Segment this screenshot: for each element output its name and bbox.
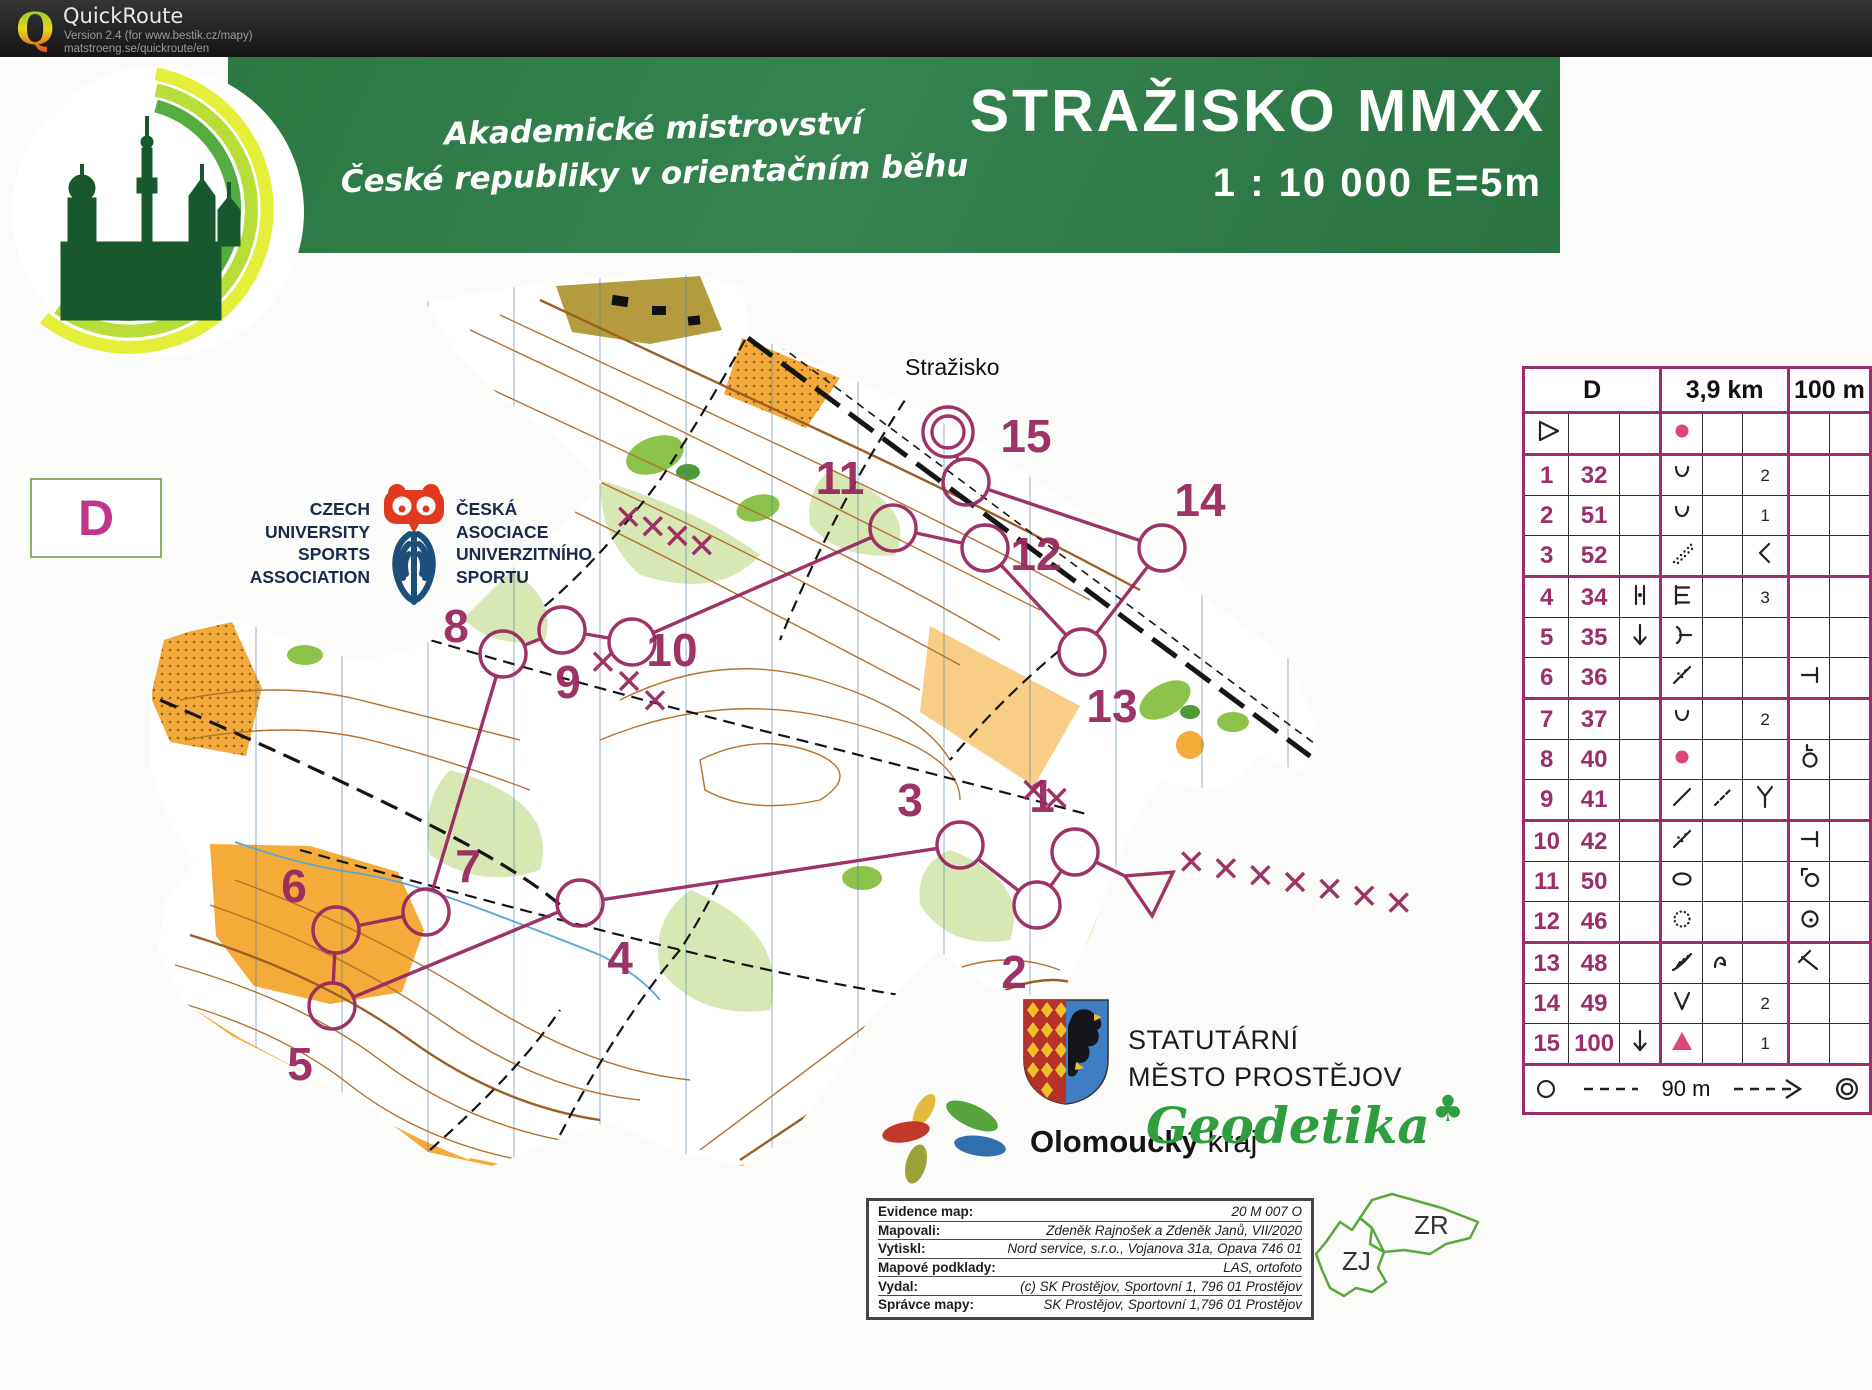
map-evidence-table: Evidence map:20 M 007 OMapovali:Zdeněk R… <box>866 1198 1314 1320</box>
desc-cell: 42 <box>1569 821 1620 862</box>
desc-cell <box>1830 699 1871 740</box>
desc-cell <box>1702 618 1743 658</box>
desc-cell: 32 <box>1569 455 1620 496</box>
desc-cell: 4 <box>1524 577 1569 618</box>
app-title: QuickRoute <box>63 4 183 28</box>
desc-cell <box>1661 658 1703 699</box>
svg-text:Q: Q <box>16 4 54 54</box>
place-label: Stražisko <box>905 354 1000 380</box>
desc-cell <box>1830 1024 1871 1065</box>
control-number: 1 <box>1029 770 1055 822</box>
cusa-line: ASOCIACE <box>456 521 646 544</box>
desc-cell <box>1743 902 1788 943</box>
desc-cell <box>1619 618 1661 658</box>
desc-cell <box>1788 577 1830 618</box>
evidence-label: Mapové podklady: <box>878 1260 996 1275</box>
desc-cell: 6 <box>1524 658 1569 699</box>
desc-cell <box>1661 943 1703 984</box>
event-title: Akademické mistrovství České republiky v… <box>323 98 985 205</box>
finish-row: 90 m <box>1524 1065 1871 1114</box>
forbidden-x-mark <box>1355 887 1373 905</box>
description-row: 151001 <box>1524 1024 1871 1065</box>
control-number: 10 <box>646 624 697 676</box>
desc-cell <box>1788 902 1830 943</box>
desc-cell <box>1661 1024 1703 1065</box>
desc-cell <box>1743 536 1788 577</box>
desc-cell <box>1702 496 1743 536</box>
desc-cell <box>1788 658 1830 699</box>
desc-cell: 52 <box>1569 536 1620 577</box>
desc-cell <box>1619 455 1661 496</box>
desc-cell <box>1788 1024 1830 1065</box>
desc-cell <box>1661 984 1703 1024</box>
control-number: 4 <box>607 932 633 984</box>
cusa-line: ČESKÁ <box>456 498 646 521</box>
desc-cell <box>1830 984 1871 1024</box>
event-banner: Akademické mistrovství České republiky v… <box>228 57 1560 253</box>
desc-cell: 5 <box>1524 618 1569 658</box>
prostejov-line1: STATUTÁRNÍ <box>1128 1022 1402 1059</box>
desc-cell <box>1619 943 1661 984</box>
desc-climb: 100 m <box>1788 368 1870 413</box>
desc-cell: 7 <box>1524 699 1569 740</box>
description-row: 941 <box>1524 780 1871 821</box>
control-number: 6 <box>281 860 307 912</box>
desc-cell <box>1661 577 1703 618</box>
control-number: 5 <box>287 1038 313 1090</box>
desc-cell <box>1619 577 1661 618</box>
cusa-line: UNIVERZITNÍHO <box>456 543 646 566</box>
control-number: 12 <box>1010 528 1061 580</box>
desc-cell <box>1788 455 1830 496</box>
desc-cell <box>1788 740 1830 780</box>
cusa-line: CZECH <box>230 498 370 521</box>
desc-cell: 1 <box>1743 496 1788 536</box>
desc-cell <box>1702 984 1743 1024</box>
evidence-label: Správce mapy: <box>878 1297 974 1312</box>
desc-cell <box>1619 536 1661 577</box>
description-row: 1348 <box>1524 943 1871 984</box>
desc-cell <box>1788 984 1830 1024</box>
desc-cell <box>1743 943 1788 984</box>
evidence-label: Vydal: <box>878 1279 918 1294</box>
area-label-zj: ZJ <box>1342 1246 1371 1276</box>
evidence-value: Zdeněk Rajnošek a Zdeněk Janů, VII/2020 <box>1046 1223 1302 1238</box>
forbidden-x-mark <box>1390 894 1408 912</box>
desc-cell <box>1830 536 1871 577</box>
desc-cell <box>1702 413 1743 455</box>
control-descriptions: D3,9 km100 m1322251135243435356367372840… <box>1522 366 1872 1115</box>
mapper-area-outline: ZJ ZR <box>1306 1186 1506 1316</box>
desc-cell <box>1661 862 1703 902</box>
control-number: 9 <box>555 656 581 708</box>
evidence-row: Správce mapy:SK Prostějov, Sportovní 1,7… <box>878 1296 1302 1314</box>
class-box: D <box>30 478 162 558</box>
desc-cell: 41 <box>1569 780 1620 821</box>
desc-cell: 40 <box>1569 740 1620 780</box>
description-row: 1322 <box>1524 455 1871 496</box>
desc-cell: 50 <box>1569 862 1620 902</box>
desc-cell <box>1619 699 1661 740</box>
description-row: 4343 <box>1524 577 1871 618</box>
desc-cell <box>1702 821 1743 862</box>
evidence-value: (c) SK Prostějov, Sportovní 1, 796 01 Pr… <box>1020 1279 1302 1294</box>
desc-cell <box>1619 780 1661 821</box>
desc-cell <box>1661 699 1703 740</box>
control-circle <box>1139 525 1185 571</box>
desc-cell <box>1788 699 1830 740</box>
arrow-icon <box>1732 1072 1810 1106</box>
description-row: 2511 <box>1524 496 1871 536</box>
geodetika-name: Geodetika <box>1146 1096 1430 1155</box>
cusa-line: SPORTU <box>456 566 646 589</box>
desc-cell: 15 <box>1524 1024 1569 1065</box>
desc-cell <box>1743 821 1788 862</box>
desc-cell <box>1524 413 1569 455</box>
description-row: 352 <box>1524 536 1871 577</box>
desc-cell <box>1661 740 1703 780</box>
desc-cell <box>1702 780 1743 821</box>
desc-cell <box>1788 536 1830 577</box>
description-row: 14492 <box>1524 984 1871 1024</box>
desc-cell <box>1569 413 1620 455</box>
desc-cell: 48 <box>1569 943 1620 984</box>
desc-cell: 100 <box>1569 1024 1620 1065</box>
desc-length: 3,9 km <box>1661 368 1788 413</box>
forbidden-x-mark <box>1182 852 1200 870</box>
description-row: 636 <box>1524 658 1871 699</box>
desc-cell <box>1830 618 1871 658</box>
description-row: 840 <box>1524 740 1871 780</box>
dash-icon <box>1582 1072 1640 1106</box>
evidence-label: Vytiskl: <box>878 1241 926 1256</box>
description-row: 535 <box>1524 618 1871 658</box>
desc-header-row: D3,9 km100 m <box>1524 368 1871 413</box>
desc-cell <box>1661 902 1703 943</box>
desc-cell <box>1830 943 1871 984</box>
description-row: 1246 <box>1524 902 1871 943</box>
area-label-zr: ZR <box>1414 1210 1449 1240</box>
desc-cell <box>1743 862 1788 902</box>
desc-cell: 2 <box>1743 984 1788 1024</box>
desc-cell: 1 <box>1743 1024 1788 1065</box>
desc-cell <box>1788 780 1830 821</box>
desc-cell: 8 <box>1524 740 1569 780</box>
desc-cell <box>1661 496 1703 536</box>
desc-cell <box>1661 536 1703 577</box>
desc-cell: 1 <box>1524 455 1569 496</box>
map-title: STRAŽISKO MMXX <box>970 77 1546 145</box>
desc-cell <box>1830 455 1871 496</box>
evidence-value: SK Prostějov, Sportovní 1,796 01 Prostěj… <box>1043 1297 1302 1312</box>
desc-cell <box>1702 455 1743 496</box>
desc-cell: 2 <box>1524 496 1569 536</box>
desc-cell: 2 <box>1743 455 1788 496</box>
desc-cell <box>1788 413 1830 455</box>
desc-cell <box>1661 821 1703 862</box>
desc-cell <box>1619 658 1661 699</box>
desc-cell: 12 <box>1524 902 1569 943</box>
desc-cell <box>1619 821 1661 862</box>
desc-cell <box>1743 780 1788 821</box>
prostejov-coat-of-arms <box>1020 996 1112 1108</box>
evidence-value: LAS, ortofoto <box>1223 1260 1302 1275</box>
control-number: 3 <box>897 774 923 826</box>
desc-cell <box>1743 413 1788 455</box>
desc-cell <box>1788 496 1830 536</box>
desc-cell <box>1661 618 1703 658</box>
clover-icon: ♣ <box>1432 1088 1464 1130</box>
evidence-value: 20 M 007 O <box>1231 1204 1302 1219</box>
desc-cell <box>1830 413 1871 455</box>
desc-cell: 37 <box>1569 699 1620 740</box>
prostejov-line2: MĚSTO PROSTĚJOV <box>1128 1059 1402 1096</box>
evidence-label: Mapovali: <box>878 1223 940 1238</box>
evidence-value: Nord service, s.r.o., Vojanova 31a, Opav… <box>1007 1241 1302 1256</box>
cusa-line: ASSOCIATION <box>230 566 370 589</box>
desc-cell: 36 <box>1569 658 1620 699</box>
desc-cell <box>1619 496 1661 536</box>
class-label: D <box>78 489 114 547</box>
desc-cell: 35 <box>1569 618 1620 658</box>
desc-cell: 3 <box>1524 536 1569 577</box>
forbidden-x-mark <box>1321 880 1339 898</box>
control-number: 13 <box>1086 680 1137 732</box>
finish-distance: 90 m <box>1662 1076 1711 1102</box>
evidence-row: Evidence map:20 M 007 O <box>878 1203 1302 1222</box>
map-scale: 1 : 10 000 E=5m <box>1213 161 1542 206</box>
desc-cell <box>1619 1024 1661 1065</box>
desc-class: D <box>1524 368 1661 413</box>
desc-cell <box>1702 862 1743 902</box>
quickroute-window: Q QuickRoute Version 2.4 (for www.bestik… <box>0 0 1872 1390</box>
desc-cell <box>1788 943 1830 984</box>
desc-cell: 11 <box>1524 862 1569 902</box>
evidence-row: Vytiskl:Nord service, s.r.o., Vojanova 3… <box>878 1240 1302 1259</box>
desc-cell <box>1830 821 1871 862</box>
desc-cell <box>1661 780 1703 821</box>
desc-cell <box>1702 1024 1743 1065</box>
evidence-row: Mapové podklady:LAS, ortofoto <box>878 1259 1302 1278</box>
desc-cell <box>1830 902 1871 943</box>
desc-cell <box>1619 984 1661 1024</box>
desc-cell <box>1830 658 1871 699</box>
desc-cell: 3 <box>1743 577 1788 618</box>
app-header-bar: Q QuickRoute Version 2.4 (for www.bestik… <box>0 0 1872 57</box>
desc-cell <box>1743 618 1788 658</box>
desc-cell <box>1788 821 1830 862</box>
desc-cell: 46 <box>1569 902 1620 943</box>
control-number: 14 <box>1174 474 1226 526</box>
desc-cell <box>1830 780 1871 821</box>
desc-cell: 9 <box>1524 780 1569 821</box>
finish-double-circle-icon <box>1831 1072 1863 1106</box>
desc-cell <box>1619 413 1661 455</box>
forbidden-x-mark <box>1217 859 1235 877</box>
forbidden-x-mark <box>1251 866 1269 884</box>
app-url: matstroeng.se/quickroute/en <box>64 43 209 55</box>
desc-cell <box>1619 902 1661 943</box>
control-number: 15 <box>1000 410 1051 462</box>
desc-cell <box>1830 862 1871 902</box>
desc-cell <box>1788 618 1830 658</box>
desc-cell <box>1702 658 1743 699</box>
control-number: 2 <box>1001 946 1027 998</box>
desc-cell <box>1702 536 1743 577</box>
desc-cell <box>1702 943 1743 984</box>
desc-cell: 49 <box>1569 984 1620 1024</box>
cusa-line: SPORTS <box>230 543 370 566</box>
desc-cell <box>1702 699 1743 740</box>
evidence-row: Mapovali:Zdeněk Rajnošek a Zdeněk Janů, … <box>878 1222 1302 1241</box>
course-leg <box>333 953 335 983</box>
forbidden-x-mark <box>1286 873 1304 891</box>
desc-cell <box>1830 740 1871 780</box>
evidence-row: Vydal:(c) SK Prostějov, Sportovní 1, 796… <box>878 1277 1302 1296</box>
desc-cell: 2 <box>1743 699 1788 740</box>
finish-start-circle-icon <box>1531 1072 1561 1106</box>
desc-cell <box>1830 496 1871 536</box>
desc-cell <box>1661 455 1703 496</box>
geodetika-logo: Geodetika♣ <box>1146 1096 1462 1155</box>
desc-cell: 14 <box>1524 984 1569 1024</box>
desc-cell <box>1619 740 1661 780</box>
desc-cell <box>1702 740 1743 780</box>
desc-cell <box>1619 862 1661 902</box>
evidence-label: Evidence map: <box>878 1204 973 1219</box>
cusa-text-en: CZECH UNIVERSITY SPORTS ASSOCIATION <box>230 498 370 588</box>
start-triangle <box>1125 872 1173 916</box>
description-row: 7372 <box>1524 699 1871 740</box>
desc-cell <box>1702 577 1743 618</box>
control-number: 7 <box>455 840 481 892</box>
desc-cell <box>1788 862 1830 902</box>
desc-cell <box>1743 740 1788 780</box>
desc-cell: 34 <box>1569 577 1620 618</box>
control-number: 11 <box>816 452 865 504</box>
description-row: 1150 <box>1524 862 1871 902</box>
cusa-text-cz: ČESKÁ ASOCIACE UNIVERZITNÍHO SPORTU <box>456 498 646 588</box>
desc-cell: 10 <box>1524 821 1569 862</box>
prostejov-text: STATUTÁRNÍ MĚSTO PROSTĚJOV <box>1128 1022 1402 1096</box>
desc-cell <box>1830 577 1871 618</box>
desc-cell <box>1661 413 1703 455</box>
quickroute-logo-icon: Q <box>14 4 58 54</box>
desc-cell <box>1743 658 1788 699</box>
description-row <box>1524 413 1871 455</box>
olomoucky-kraj-flower-icon <box>876 1084 1026 1184</box>
desc-cell <box>1702 902 1743 943</box>
cusa-owl-icon <box>376 482 452 608</box>
app-version: Version 2.4 (for www.bestik.cz/mapy) <box>64 30 253 42</box>
cusa-line: UNIVERSITY <box>230 521 370 544</box>
desc-cell: 13 <box>1524 943 1569 984</box>
desc-cell: 51 <box>1569 496 1620 536</box>
description-row: 1042 <box>1524 821 1871 862</box>
